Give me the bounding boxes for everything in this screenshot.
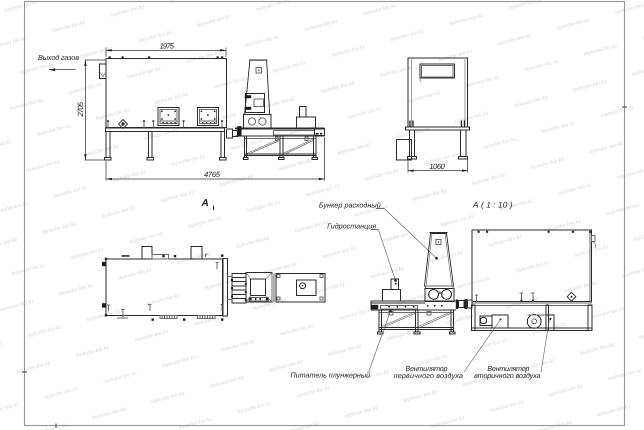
svg-text:вторичного воздуха: вторичного воздуха [474,371,540,380]
svg-text:1060: 1060 [429,162,445,171]
svg-text:Выход газов: Выход газов [38,53,79,62]
svg-text:Гидростанция: Гидростанция [327,222,376,231]
svg-text:А ( 1 : 10 ): А ( 1 : 10 ) [472,200,513,209]
svg-text:А: А [201,198,209,209]
svg-text:Бункер расходный: Бункер расходный [319,201,381,210]
svg-text:Питатель плунжерный: Питатель плунжерный [291,370,371,379]
svg-text:1975: 1975 [160,41,175,50]
svg-text:первичного воздуха: первичного воздуха [394,371,463,380]
svg-text:2705: 2705 [76,101,85,117]
svg-text:4765: 4765 [204,170,221,179]
